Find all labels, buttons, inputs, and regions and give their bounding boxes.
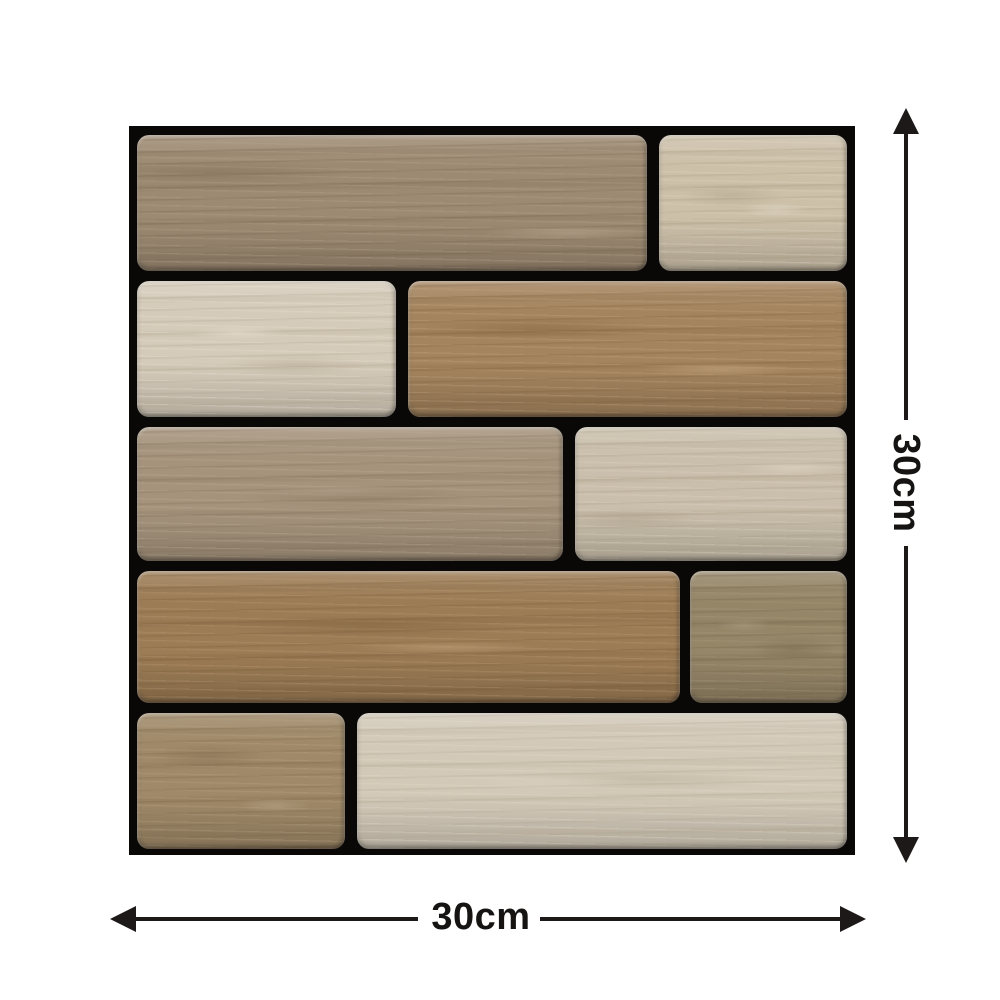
width-dimension-label: 30cm: [431, 898, 530, 936]
plank-row5-right: [357, 713, 847, 849]
plank-row4-right: [690, 571, 847, 703]
tile-panel: [129, 126, 855, 855]
height-dimension-line-bottom: [904, 546, 908, 838]
plank-row4-left: [137, 571, 680, 703]
height-dimension-line-top: [904, 131, 908, 420]
width-dimension-line-right: [540, 917, 842, 921]
height-dimension-label: 30cm: [887, 433, 925, 532]
plank-row2-left: [137, 281, 396, 417]
product-image: 30cm 30cm: [0, 0, 1000, 1000]
plank-row1-left: [137, 135, 647, 271]
width-dimension-line-left: [133, 917, 418, 921]
plank-row3-left: [137, 427, 563, 561]
arrow-right-icon: [840, 906, 866, 932]
plank-row3-right: [575, 427, 847, 561]
plank-row2-right: [408, 281, 847, 417]
plank-row1-right: [659, 135, 847, 271]
plank-row5-left: [137, 713, 345, 849]
arrow-down-icon: [893, 837, 919, 863]
